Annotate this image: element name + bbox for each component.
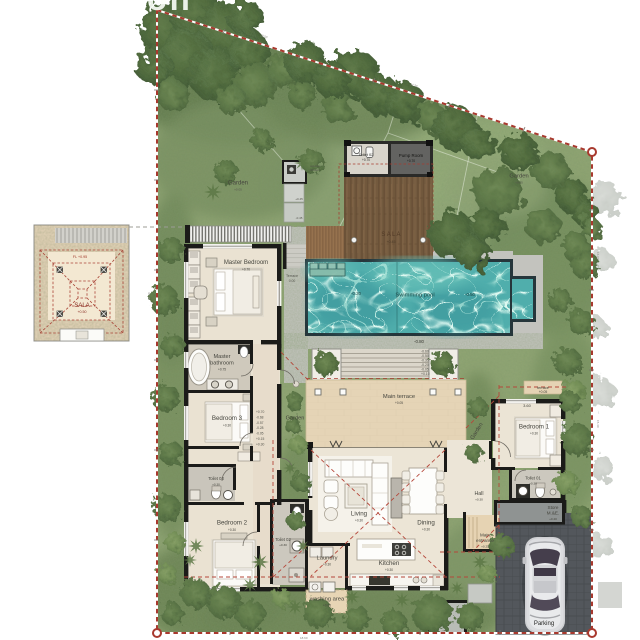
svg-text:-0.50: -0.50	[421, 354, 429, 358]
svg-text:-0.20: -0.20	[421, 363, 429, 367]
svg-text:+0.05: +0.05	[323, 604, 331, 608]
svg-text:SALA: SALA	[74, 303, 89, 309]
svg-text:+0.15: +0.15	[256, 437, 265, 441]
svg-text:-0.68: -0.68	[256, 415, 264, 419]
svg-text:Bedroom 1: Bedroom 1	[519, 424, 550, 431]
svg-text:Main: Main	[480, 533, 490, 538]
svg-text:Terrace: Terrace	[286, 274, 298, 278]
svg-text:+0.30: +0.30	[279, 543, 287, 547]
svg-text:16.00: 16.00	[596, 252, 600, 260]
svg-text:Kitchen: Kitchen	[379, 560, 400, 567]
svg-text:-0.05: -0.05	[421, 368, 429, 372]
svg-text:Toilet 01: Toilet 01	[525, 476, 541, 481]
svg-text:-0.28: -0.28	[256, 426, 264, 430]
svg-text:+0.05: +0.05	[395, 401, 403, 405]
svg-text:Store: Store	[548, 505, 559, 510]
svg-text:-0.05: -0.05	[256, 432, 264, 436]
svg-text:entrance: entrance	[476, 538, 494, 543]
svg-text:+0.30: +0.30	[475, 498, 483, 502]
svg-text:+0.30: +0.30	[385, 568, 393, 572]
svg-text:+0.30: +0.30	[228, 528, 236, 532]
svg-text:S A L A: S A L A	[381, 232, 400, 238]
svg-text:Bedroom 2: Bedroom 2	[217, 520, 248, 527]
svg-text:+0.25: +0.25	[481, 545, 489, 549]
svg-text:-0.80: -0.80	[414, 339, 425, 344]
svg-text:Master: Master	[213, 354, 230, 360]
svg-text:shower: shower	[310, 168, 320, 172]
svg-text:+0.30: +0.30	[529, 482, 537, 486]
svg-text:Swimming pool: Swimming pool	[395, 293, 434, 299]
svg-text:+0.05: +0.05	[539, 390, 548, 394]
svg-text:Pump Room: Pump Room	[399, 153, 424, 158]
svg-text:FL +0.95: FL +0.95	[73, 255, 87, 259]
svg-text:+0.30: +0.30	[223, 424, 231, 428]
svg-text:bathroom: bathroom	[210, 361, 234, 367]
svg-text:+0.30: +0.30	[355, 519, 363, 523]
svg-text:-0.20: -0.20	[351, 291, 362, 296]
svg-text:-0.35: -0.35	[421, 359, 429, 363]
svg-text:+0.10: +0.10	[421, 372, 430, 376]
svg-text:+0.30: +0.30	[530, 432, 538, 436]
svg-text:+0.70: +0.70	[242, 268, 250, 272]
svg-text:+0.45: +0.45	[295, 197, 303, 201]
svg-text:Garden: Garden	[509, 174, 528, 180]
svg-text:-0.57: -0.57	[256, 421, 264, 425]
svg-text:M.&E.: M.&E.	[547, 511, 560, 516]
svg-text:washing area: washing area	[309, 597, 345, 603]
svg-text:Garden: Garden	[286, 416, 305, 422]
svg-text:+0.70: +0.70	[362, 158, 370, 162]
svg-text:on: on	[147, 0, 192, 17]
svg-text:+0.30: +0.30	[256, 442, 265, 446]
svg-text:Dining: Dining	[417, 520, 435, 527]
svg-text:+0.70: +0.70	[407, 159, 415, 163]
svg-text:Laundry: Laundry	[317, 556, 338, 562]
svg-text:+0.75: +0.75	[218, 368, 226, 372]
svg-text:+0.45: +0.45	[386, 240, 395, 244]
svg-text:Hall: Hall	[475, 491, 484, 497]
svg-text:Parking: Parking	[534, 621, 554, 627]
svg-text:Living: Living	[351, 511, 368, 518]
svg-text:Master Bedroom: Master Bedroom	[224, 260, 268, 266]
svg-text:Toilet 02: Toilet 02	[359, 152, 375, 157]
svg-text:-0.45: -0.45	[296, 216, 303, 220]
svg-text:Garden: Garden	[228, 181, 248, 187]
svg-text:+0.70: +0.70	[256, 410, 265, 414]
svg-text:+0.20: +0.20	[549, 517, 557, 521]
svg-text:Bedroom 3: Bedroom 3	[212, 415, 243, 422]
svg-text:+0.30: +0.30	[422, 528, 430, 532]
svg-text:Toilet 03: Toilet 03	[208, 476, 224, 481]
svg-text:+0.05: +0.05	[515, 181, 523, 185]
svg-text:3.60: 3.60	[523, 403, 532, 408]
svg-text:Main terrace: Main terrace	[383, 394, 415, 400]
svg-text:-0.50: -0.50	[465, 292, 476, 297]
svg-text:+0.30: +0.30	[323, 563, 331, 567]
svg-text:Toilet 02: Toilet 02	[275, 537, 291, 542]
svg-text:-0.60: -0.60	[421, 350, 429, 354]
svg-text:+0.30: +0.30	[212, 483, 220, 487]
svg-text:0.00: 0.00	[289, 279, 296, 283]
svg-text:18.60: 18.60	[300, 636, 308, 640]
svg-text:+0.05: +0.05	[234, 188, 242, 192]
svg-text:+0.50: +0.50	[77, 310, 86, 314]
svg-text:21.30: 21.30	[147, 292, 151, 300]
svg-text:15.40: 15.40	[596, 420, 600, 428]
